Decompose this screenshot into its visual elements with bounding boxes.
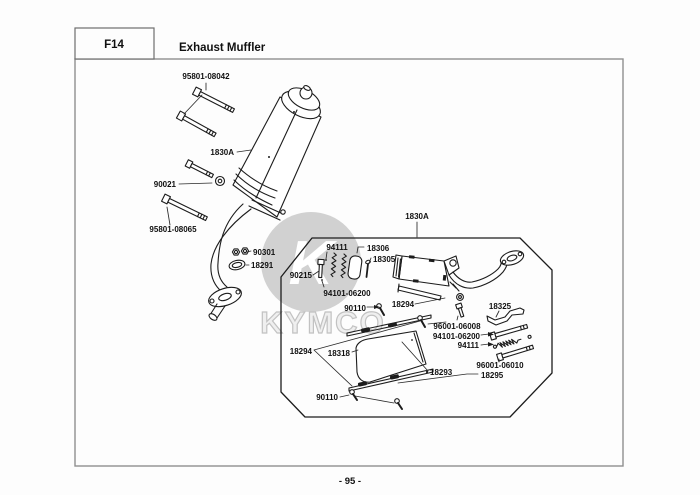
part-label-94111-springs: 94111 [326,243,348,252]
gasket-18291 [228,259,246,271]
part-label-90021: 90021 [154,180,177,189]
part-label-18294-band: 18294 [392,300,415,309]
kymco-emblem-letter: K [289,229,338,298]
screw-90110-bottom-b [395,399,402,409]
bolt-90021 [185,160,214,179]
part-label-18318: 18318 [328,349,351,358]
page-number: - 95 - [339,476,361,487]
part-label-18295: 18295 [481,371,504,380]
part-label-96001-06008: 96001-06008 [433,322,481,331]
kymco-watermark-text: KYMCO [260,305,385,340]
pin-18305 [365,260,371,277]
part-label-18291: 18291 [251,261,274,270]
part-label-18293: 18293 [430,368,453,377]
part-label-90301: 90301 [253,248,276,257]
part-label-18305: 18305 [373,255,396,264]
part-label-18306: 18306 [367,244,390,253]
bolt-94101-06200-long [490,323,528,340]
part-label-1830A-inset: 1830A [405,212,429,221]
part-label-90110-mid: 90110 [344,304,366,313]
part-label-90110-bottom: 90110 [316,393,338,402]
mount-bolt-95801-08042-b [176,111,217,138]
pad-18306 [347,255,362,279]
part-label-1830A-main: 1830A [210,148,234,157]
part-label-94101-06200-a: 94101-06200 [323,289,371,298]
diagram-canvas: K KYMCO F14 Exhaust Muffler [0,0,700,495]
mount-bolt-95801-08042-a [193,87,236,114]
part-label-95801-08042: 95801-08042 [182,72,230,81]
rod-between-screws [355,396,394,403]
part-label-18294-left: 18294 [290,347,313,356]
part-label-94101-06200-b: 94101-06200 [433,332,481,341]
part-label-96001-06010: 96001-06010 [476,361,524,370]
part-label-95801-08065: 95801-08065 [149,225,197,234]
bolt-96001-06008 [456,303,465,317]
washer-90021 [216,177,225,186]
inset-muffler-drawing [393,248,525,300]
manual-page: K KYMCO F14 Exhaust Muffler [0,0,700,495]
screw-90110-bottom-a [350,390,357,400]
muffler-band-18294 [398,286,441,300]
page-title: Exhaust Muffler [179,42,266,54]
nuts-90301 [232,248,248,255]
section-code: F14 [104,39,124,51]
part-label-90215: 90215 [290,271,313,280]
part-label-94111-spring-long: 94111 [458,341,480,350]
part-label-18325: 18325 [489,302,512,311]
